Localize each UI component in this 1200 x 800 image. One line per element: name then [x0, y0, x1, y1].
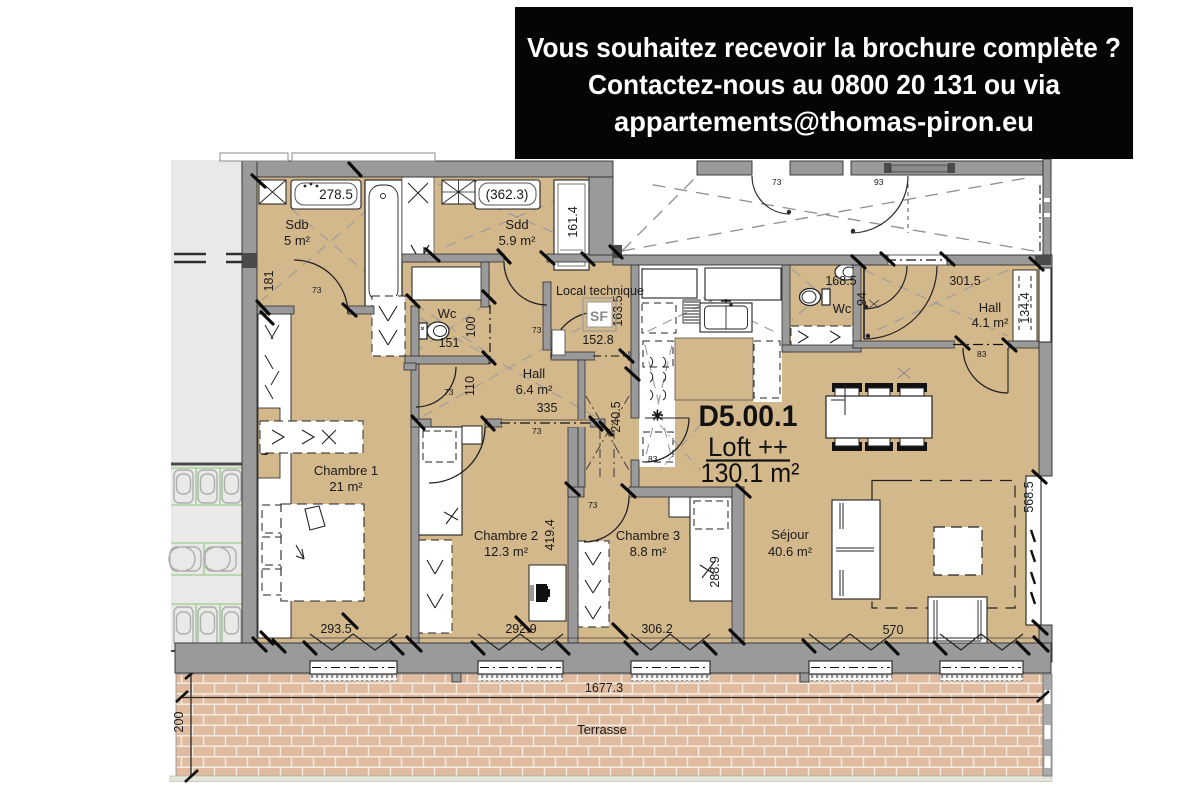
svg-text:6.4 m²: 6.4 m² — [516, 382, 554, 397]
svg-text:Sdd: Sdd — [505, 217, 528, 232]
svg-text:240.5: 240.5 — [609, 401, 623, 432]
svg-text:Contactez-nous au 0800 20 131: Contactez-nous au 0800 20 131 ou via — [588, 69, 1060, 100]
svg-text:293.5: 293.5 — [320, 622, 351, 636]
svg-text:306.2: 306.2 — [641, 622, 672, 636]
svg-text:134.4: 134.4 — [1018, 292, 1032, 323]
svg-text:200: 200 — [172, 712, 186, 733]
svg-text:151: 151 — [439, 336, 460, 350]
svg-text:5 m²: 5 m² — [284, 233, 311, 248]
svg-text:152.8: 152.8 — [582, 333, 613, 347]
svg-text:Terrasse: Terrasse — [577, 722, 627, 737]
svg-text:Séjour: Séjour — [771, 527, 809, 542]
svg-text:570: 570 — [883, 623, 904, 637]
svg-text:(362.3): (362.3) — [486, 187, 529, 202]
svg-text:D5.00.1: D5.00.1 — [699, 400, 798, 433]
svg-text:Local technique: Local technique — [556, 283, 644, 298]
svg-text:Chambre 3: Chambre 3 — [616, 528, 680, 543]
svg-text:SF: SF — [590, 308, 608, 324]
svg-text:73: 73 — [772, 177, 782, 187]
svg-text:161.4: 161.4 — [566, 206, 580, 237]
svg-text:Sdb: Sdb — [285, 217, 308, 232]
svg-text:292.9: 292.9 — [505, 622, 536, 636]
svg-text:288.9: 288.9 — [708, 556, 722, 587]
svg-text:73: 73 — [532, 426, 542, 436]
svg-text:73: 73 — [588, 500, 598, 510]
svg-text:419.4: 419.4 — [543, 519, 557, 550]
svg-text:Wc: Wc — [833, 301, 852, 316]
svg-text:163.5: 163.5 — [611, 295, 625, 326]
svg-text:93: 93 — [874, 177, 884, 187]
svg-text:Hall: Hall — [523, 366, 546, 381]
svg-text:1677.3: 1677.3 — [585, 681, 623, 695]
svg-text:Hall: Hall — [979, 300, 1002, 315]
svg-text:4.1 m²: 4.1 m² — [972, 315, 1010, 330]
svg-text:73: 73 — [312, 285, 322, 295]
svg-text:100: 100 — [464, 317, 478, 338]
svg-text:278.5: 278.5 — [319, 187, 353, 202]
svg-text:110: 110 — [463, 376, 477, 396]
svg-text:73: 73 — [444, 387, 454, 397]
svg-text:Chambre 2: Chambre 2 — [474, 528, 538, 543]
svg-text:83: 83 — [648, 454, 658, 464]
svg-text:335: 335 — [537, 401, 558, 415]
svg-text:appartements@thomas-piron.eu: appartements@thomas-piron.eu — [614, 106, 1034, 137]
svg-text:301.5: 301.5 — [949, 274, 980, 288]
svg-text:Chambre 1: Chambre 1 — [314, 463, 378, 478]
svg-text:94: 94 — [855, 292, 869, 306]
svg-text:8.8 m²: 8.8 m² — [630, 544, 668, 559]
svg-text:Vous souhaitez recevoir la bro: Vous souhaitez recevoir la brochure comp… — [527, 32, 1121, 63]
svg-text:40.6 m²: 40.6 m² — [768, 544, 813, 559]
svg-text:Wc: Wc — [438, 306, 457, 321]
svg-text:73: 73 — [532, 325, 542, 335]
svg-text:130.1 m²: 130.1 m² — [701, 458, 800, 488]
svg-text:568.5: 568.5 — [1022, 481, 1036, 512]
svg-text:5.9 m²: 5.9 m² — [499, 233, 537, 248]
svg-text:168.5: 168.5 — [825, 274, 856, 288]
svg-text:83: 83 — [977, 349, 987, 359]
svg-text:12.3 m²: 12.3 m² — [484, 544, 529, 559]
svg-text:181: 181 — [262, 271, 276, 292]
svg-text:21 m²: 21 m² — [329, 479, 363, 494]
